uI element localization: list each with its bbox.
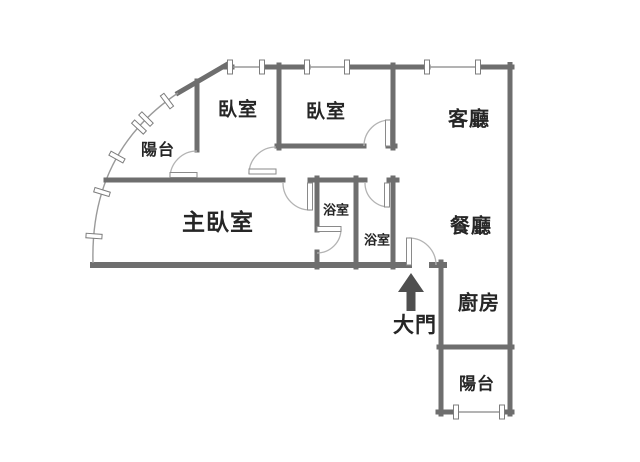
room-label-balcony-bottom: 陽台 [459, 370, 495, 395]
room-label-bathroom-2: 浴室 [364, 230, 390, 249]
window-tick-icon [160, 93, 173, 108]
floor-plan-drawing [0, 0, 640, 462]
window-tick-icon [260, 60, 265, 74]
door-leaf-balcony [170, 173, 197, 178]
room-label-living-room: 客廳 [448, 103, 490, 132]
window-tick-icon [345, 60, 350, 74]
floor-plan: 臥室 臥室 客廳 陽台 主臥室 浴室 浴室 餐廳 廚房 大門 陽台 [0, 0, 640, 462]
door-leaf-bedroom2 [386, 120, 391, 146]
window-tick-icon [305, 60, 310, 74]
window-tick-icon [454, 405, 459, 419]
window-tick-icon [94, 188, 111, 197]
window-tick-icon [86, 233, 102, 239]
wall-diagonal [178, 65, 226, 93]
door-arc-entry [409, 238, 436, 265]
door-arc-master [283, 183, 310, 210]
door-swing-symbols [170, 120, 436, 265]
room-label-bedroom-2: 臥室 [306, 97, 346, 124]
door-leaf-bathroom1 [317, 227, 341, 232]
door-leaf-bathroom2 [385, 183, 390, 207]
door-leaf-entry [407, 238, 412, 265]
window-tick-icon [500, 405, 505, 419]
room-label-balcony-top: 陽台 [141, 136, 175, 160]
room-label-kitchen: 廚房 [458, 287, 500, 316]
entry-arrow-icon [398, 273, 424, 311]
room-label-bedroom-1: 臥室 [218, 95, 258, 122]
window-tick-icon [228, 60, 233, 74]
entry-arrow-shape [398, 273, 424, 311]
room-label-bathroom-1: 浴室 [323, 200, 349, 219]
room-label-master-bedroom: 主臥室 [182, 203, 254, 237]
door-arc-bathroom1 [317, 229, 341, 253]
door-leaf-bedroom1 [249, 169, 276, 174]
room-label-dining-room: 餐廳 [450, 210, 492, 239]
entry-label: 大門 [393, 309, 437, 339]
window-tick-icon [109, 151, 125, 163]
window-tick-icon [425, 60, 430, 74]
door-leaf-master [308, 183, 313, 210]
window-tick-icon [476, 60, 481, 74]
